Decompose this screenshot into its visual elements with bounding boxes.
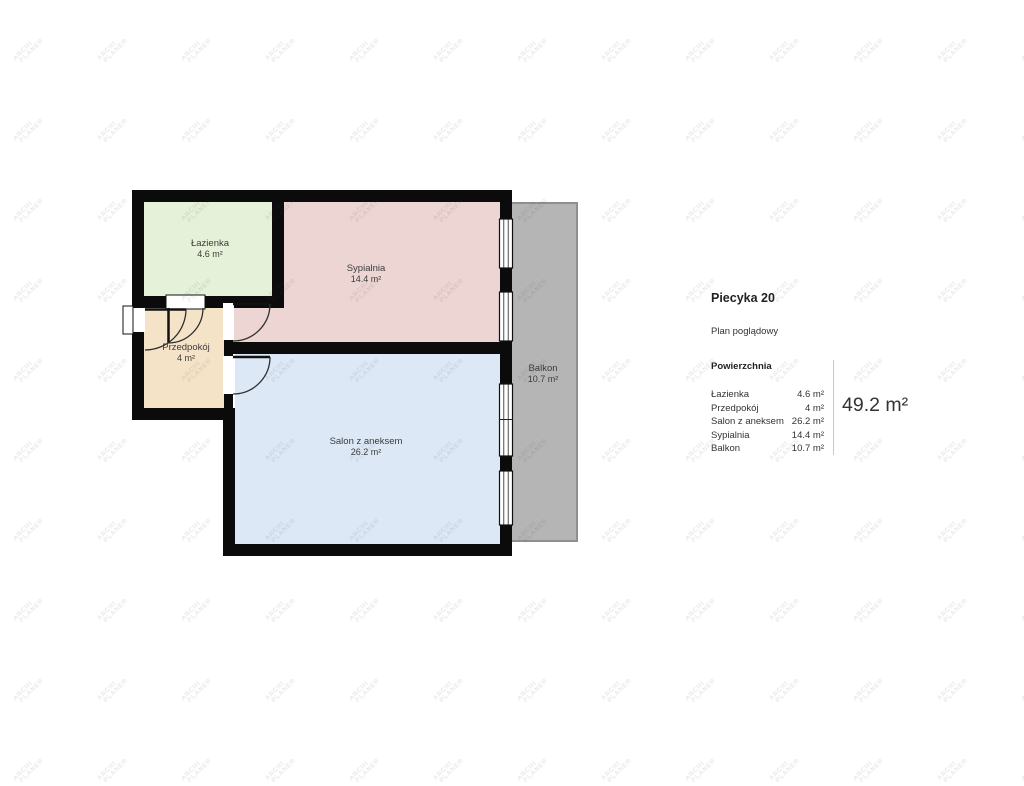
watermark-text: ARCHIPLANER	[265, 754, 297, 786]
area-row-label: Salon z aneksem	[711, 416, 784, 427]
wall-lazienka-divider	[272, 190, 284, 308]
room-label-lazienka: Łazienka 4.6 m²	[191, 238, 229, 260]
window-symbol	[500, 292, 513, 341]
floor-plan-drawing	[0, 0, 1024, 750]
area-row: Sypialnia 14.4 m²	[711, 429, 824, 443]
entry-door-frame	[123, 306, 133, 334]
room-sypialnia-floor	[284, 202, 500, 342]
area-row: Łazienka 4.6 m²	[711, 388, 824, 402]
area-row-label: Przedpokój	[711, 403, 759, 414]
room-area: 26.2 m²	[330, 447, 403, 458]
window-symbol	[500, 219, 513, 268]
watermark-text: ARCHIPLANER	[349, 754, 381, 786]
room-area: 4 m²	[162, 353, 210, 364]
area-row-label: Sypialnia	[711, 430, 750, 441]
salon-door-opening	[223, 356, 234, 394]
room-label-przedpokoj: Przedpokój 4 m²	[162, 342, 210, 364]
watermark-text: ARCHIPLANER	[937, 754, 969, 786]
room-label-salon: Salon z aneksem 26.2 m²	[330, 436, 403, 458]
watermark-text: ARCHIPLANER	[433, 754, 465, 786]
room-name: Przedpokój	[162, 342, 210, 353]
window-symbol	[500, 471, 513, 525]
lazienka-door-threshold	[166, 295, 205, 309]
area-row-value: 4 m²	[805, 403, 824, 414]
area-row-value: 14.4 m²	[792, 430, 824, 441]
area-row-value: 26.2 m²	[792, 416, 824, 427]
room-area: 14.4 m²	[347, 274, 386, 285]
area-table: Łazienka 4.6 m² Przedpokój 4 m² Salon z …	[711, 388, 824, 456]
room-name: Salon z aneksem	[330, 436, 403, 447]
area-row-label: Łazienka	[711, 389, 749, 400]
watermark-text: ARCHIPLANER	[181, 754, 213, 786]
sypialnia-door-opening	[223, 303, 234, 340]
room-label-balkon: Balkon 10.7 m²	[528, 363, 559, 385]
room-name: Łazienka	[191, 238, 229, 249]
area-row: Salon z aneksem 26.2 m²	[711, 415, 824, 429]
room-area: 4.6 m²	[191, 249, 229, 260]
window-symbol	[500, 384, 513, 456]
area-row: Przedpokój 4 m²	[711, 402, 824, 416]
area-row-value: 10.7 m²	[792, 443, 824, 454]
watermark-text: ARCHIPLANER	[517, 754, 549, 786]
wall-lazienka-bottom	[132, 296, 284, 308]
wall-top	[132, 190, 512, 202]
watermark-text: ARCHIPLANER	[685, 754, 717, 786]
area-row-label: Balkon	[711, 443, 740, 454]
watermark-text: ARCHIPLANER	[601, 754, 633, 786]
area-section-heading: Powierzchnia	[711, 361, 772, 372]
wall-sypialnia-salon-divider	[224, 342, 512, 354]
wall-salon-left	[223, 408, 235, 556]
room-name: Balkon	[528, 363, 559, 374]
page-title: Piecyka 20	[711, 291, 775, 305]
wall-step	[132, 408, 235, 420]
watermark-text: ARCHIPLANER	[13, 754, 45, 786]
room-label-sypialnia: Sypialnia 14.4 m²	[347, 263, 386, 285]
floorplan-page: ARCHIPLANERARCHIPLANERARCHIPLANERARCHIPL…	[0, 0, 1024, 750]
total-area: 49.2 m²	[842, 394, 908, 417]
plan-subtitle: Plan poglądowy	[711, 326, 778, 337]
watermark-text: ARCHIPLANER	[97, 754, 129, 786]
area-row-value: 4.6 m²	[797, 389, 824, 400]
watermark-text: ARCHIPLANER	[769, 754, 801, 786]
room-sypialnia-floor-ext	[233, 308, 284, 342]
area-row: Balkon 10.7 m²	[711, 442, 824, 456]
room-name: Sypialnia	[347, 263, 386, 274]
room-area: 10.7 m²	[528, 374, 559, 385]
total-divider-line	[833, 360, 834, 455]
watermark-text: ARCHIPLANER	[853, 754, 885, 786]
wall-bottom	[224, 544, 512, 556]
